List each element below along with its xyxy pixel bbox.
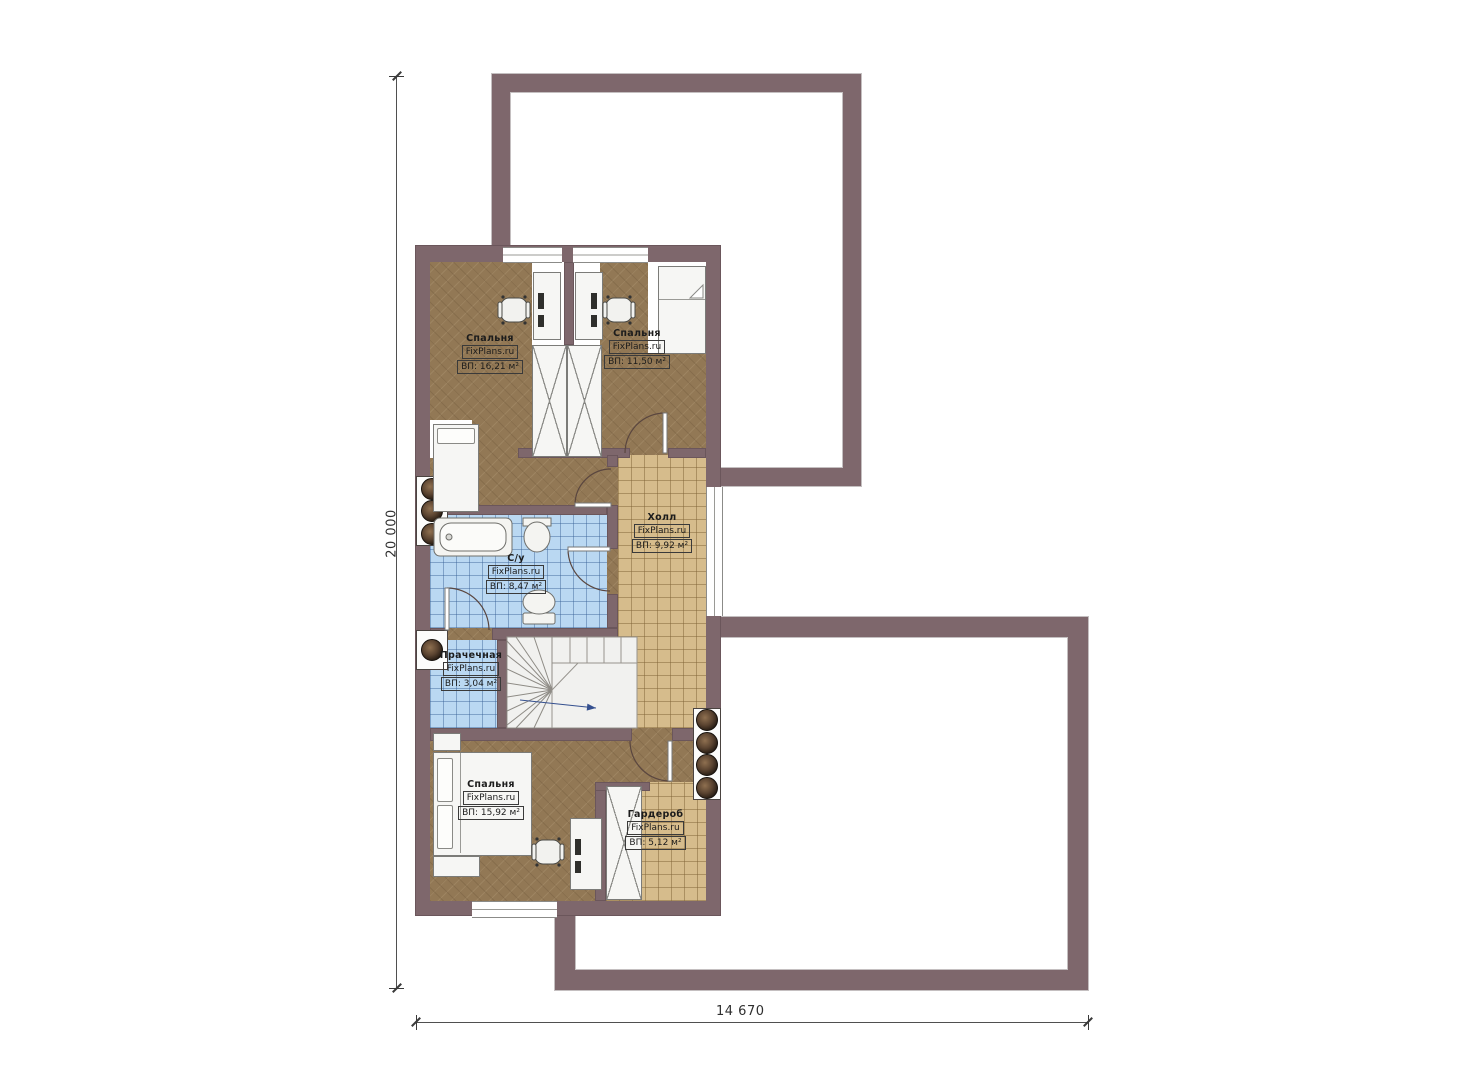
room-name: Прачечная (440, 650, 502, 661)
blanket-fold (690, 285, 703, 298)
room-name: Спальня (467, 779, 515, 790)
door-bedroom-2 (625, 413, 667, 453)
room-label-bathroom: С/у FixPlans.ru ВП: 8,47 м² (466, 553, 566, 594)
room-brand: FixPlans.ru (627, 821, 683, 835)
door-bathroom (568, 547, 610, 591)
room-brand: FixPlans.ru (462, 345, 518, 359)
door-corridor-hall (575, 469, 611, 507)
dimension-label-vertical: 20 000 (385, 494, 400, 574)
door-laundry (445, 588, 489, 630)
dimension-line-horizontal (416, 1022, 1089, 1023)
room-label-wardrobe: Гардероб FixPlans.ru ВП: 5,12 м² (608, 809, 703, 850)
room-label-hall: Холл FixPlans.ru ВП: 9,92 м² (612, 512, 712, 553)
room-brand: FixPlans.ru (443, 662, 499, 676)
room-name: Холл (648, 512, 677, 523)
office-chair-icon (498, 295, 530, 324)
floor-plan: Спальня FixPlans.ru ВП: 16,21 м² Спальня… (0, 0, 1474, 1080)
room-label-laundry: Прачечная FixPlans.ru ВП: 3,04 м² (421, 650, 521, 691)
office-chair-icon (603, 295, 635, 324)
staircase (507, 637, 637, 728)
room-brand: FixPlans.ru (609, 340, 665, 354)
room-label-bedroom-top-right: Спальня FixPlans.ru ВП: 11,50 м² (587, 328, 687, 369)
room-name: Спальня (613, 328, 661, 339)
room-area: ВП: 9,92 м² (632, 539, 692, 553)
room-name: Спальня (466, 333, 514, 344)
room-name: С/у (507, 553, 525, 564)
room-label-bedroom-bottom: Спальня FixPlans.ru ВП: 15,92 м² (441, 779, 541, 820)
room-area: ВП: 16,21 м² (457, 360, 523, 374)
door-bedroom-3 (630, 741, 672, 781)
sink-icon (523, 518, 551, 552)
room-area: ВП: 11,50 м² (604, 355, 670, 369)
room-brand: FixPlans.ru (463, 791, 519, 805)
bathtub-icon (434, 518, 512, 556)
room-brand: FixPlans.ru (634, 524, 690, 538)
plan-vector-overlay (0, 0, 1474, 1080)
dimension-label-horizontal: 14 670 (716, 1004, 765, 1019)
office-chair-icon (532, 837, 564, 866)
room-area: ВП: 5,12 м² (625, 836, 685, 850)
room-area: ВП: 8,47 м² (486, 580, 546, 594)
room-brand: FixPlans.ru (488, 565, 544, 579)
room-name: Гардероб (628, 809, 684, 820)
room-area: ВП: 15,92 м² (458, 806, 524, 820)
toilet-icon (523, 590, 555, 624)
room-area: ВП: 3,04 м² (441, 677, 501, 691)
room-label-bedroom-top-left: Спальня FixPlans.ru ВП: 16,21 м² (440, 333, 540, 374)
